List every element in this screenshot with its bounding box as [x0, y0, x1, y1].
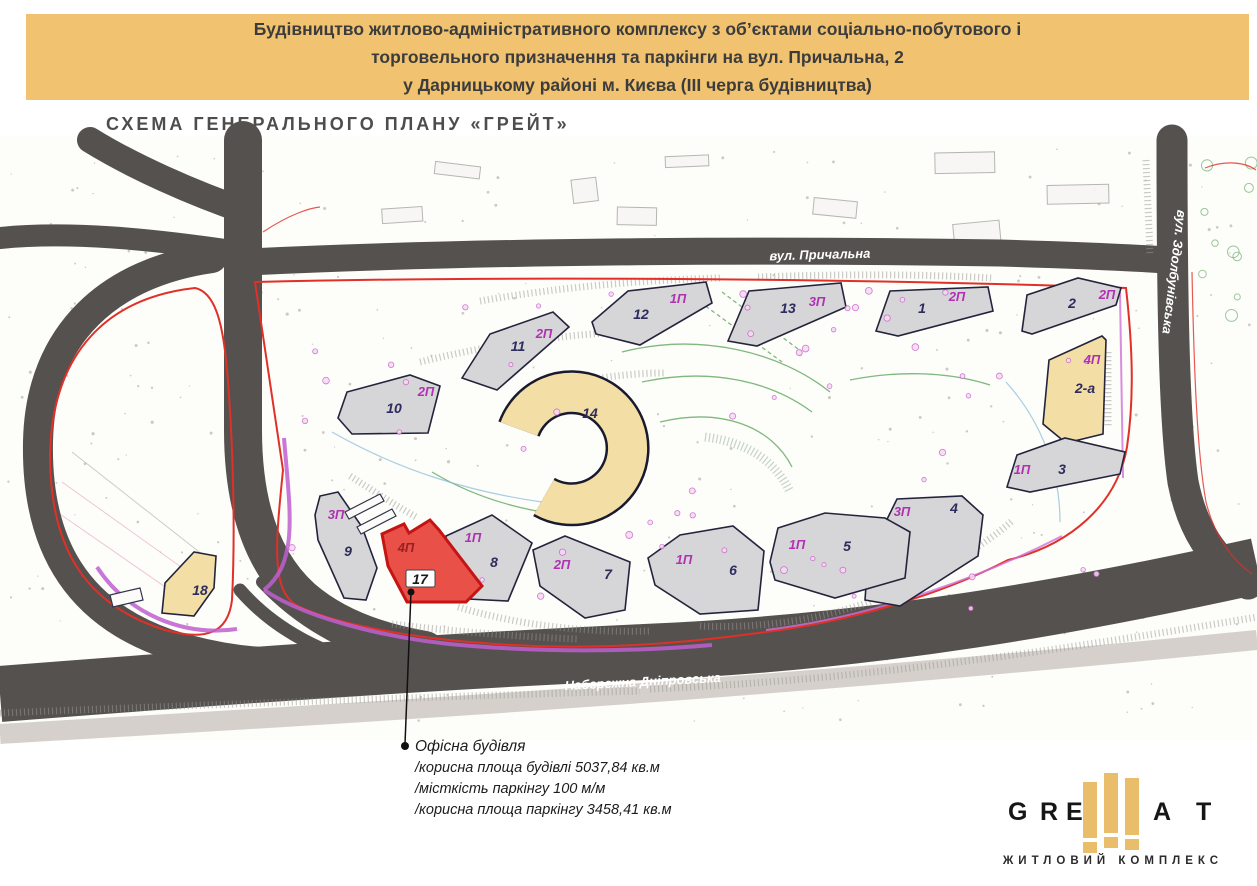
building-9-number: 9: [344, 543, 352, 559]
building-1-parking: 2П: [948, 289, 966, 304]
logo-bar-icon: [1083, 782, 1097, 838]
logo-square-icon: [1083, 842, 1097, 853]
building-11-number: 11: [511, 338, 526, 354]
logo-subtitle: ЖИТЛОВИЙ КОМПЛЕКС: [993, 855, 1233, 867]
building-7-number: 7: [604, 566, 613, 582]
building-1-number: 1: [918, 300, 926, 316]
building-5-parking: 1П: [789, 537, 806, 552]
building-9-parking: 3П: [328, 507, 345, 522]
annotation-line: /місткість паркінгу 100 м/м: [415, 779, 672, 800]
logo-letter: A: [1153, 798, 1171, 827]
logo-bar-icon: [1125, 778, 1139, 835]
logo-letter: G: [1008, 798, 1027, 827]
building-11-parking: 2П: [535, 326, 553, 341]
building-3-number: 3: [1058, 461, 1066, 477]
building-3-parking: 1П: [1014, 462, 1031, 477]
building-2-parking: 2П: [1098, 287, 1116, 302]
building-6-parking: 1П: [676, 552, 693, 567]
building-4-parking: 3П: [894, 504, 911, 519]
logo-letter: T: [1196, 798, 1211, 827]
building-2a-parking: 4П: [1083, 352, 1101, 367]
building-12-number: 12: [633, 306, 649, 322]
page: Будівництво житлово-адміністративного ко…: [0, 0, 1257, 886]
annotation-line: /корисна площа будівлі 5037,84 кв.м: [415, 758, 672, 779]
office-annotation: Офісна будівля /корисна площа будівлі 50…: [415, 736, 672, 821]
building-8-parking: 1П: [465, 530, 482, 545]
building-2-number: 2: [1067, 295, 1076, 311]
street-prychalna-label: вул. Причальна: [769, 246, 870, 264]
building-17-parking: 4П: [397, 540, 415, 555]
building-12-parking: 1П: [670, 291, 687, 306]
building-2a-number: 2-а: [1074, 380, 1095, 396]
building-13-parking: 3П: [809, 294, 826, 309]
logo-square-icon: [1125, 839, 1139, 850]
building-14-number: 14: [582, 405, 598, 421]
logo-letter: E: [1066, 798, 1083, 827]
building-10-number: 10: [386, 400, 402, 416]
logo-square-icon: [1104, 837, 1118, 848]
annotation-title: Офісна будівля: [415, 736, 672, 757]
building-4-number: 4: [949, 500, 958, 516]
great-logo: G R E A T ЖИТЛОВИЙ КОМПЛЕКС: [993, 762, 1233, 874]
logo-bar-icon: [1104, 773, 1118, 833]
building-17-number: 17: [412, 571, 429, 587]
building-7-parking: 2П: [553, 557, 571, 572]
building-10-parking: 2П: [417, 384, 435, 399]
building-8-number: 8: [490, 554, 498, 570]
building-18-number: 18: [192, 582, 208, 598]
logo-letter: R: [1040, 798, 1058, 827]
annotation-line: /корисна площа паркінгу 3458,41 кв.м: [415, 800, 672, 821]
building-5-number: 5: [843, 538, 851, 554]
building-13-number: 13: [780, 300, 796, 316]
road-prychalna: [248, 251, 1168, 262]
building-6-number: 6: [729, 562, 737, 578]
